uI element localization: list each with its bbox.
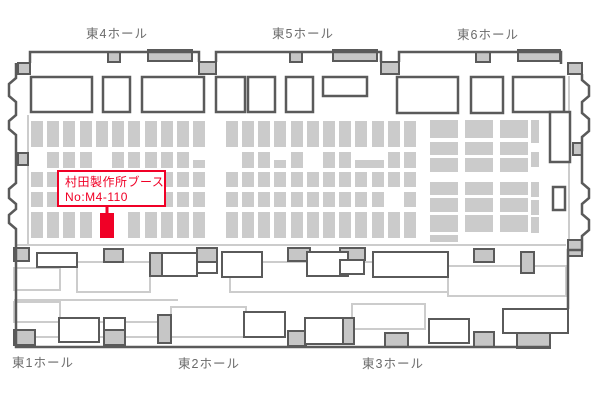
booth-block bbox=[323, 212, 335, 238]
booth-block bbox=[63, 121, 75, 147]
right-room bbox=[553, 187, 565, 210]
lower-gray-block bbox=[288, 331, 306, 346]
booth-block bbox=[242, 212, 254, 238]
lower-white-room bbox=[429, 319, 469, 343]
wall-entrance-bar bbox=[108, 52, 120, 62]
lower-gray-block bbox=[104, 249, 123, 262]
booth-block bbox=[323, 192, 335, 207]
booth-block bbox=[193, 172, 205, 187]
booth-block bbox=[274, 192, 286, 207]
booth-block bbox=[161, 152, 173, 168]
booth-block bbox=[372, 212, 384, 238]
door-block bbox=[568, 63, 582, 74]
booth-block bbox=[355, 192, 367, 207]
booth-block bbox=[128, 121, 140, 147]
lower-white-room bbox=[340, 260, 364, 274]
booth-block bbox=[339, 212, 351, 238]
top-room bbox=[397, 77, 458, 113]
lower-white-room bbox=[197, 262, 217, 273]
booth-block bbox=[193, 160, 205, 168]
booth-block-wide bbox=[500, 215, 528, 232]
booth-block-wide bbox=[465, 215, 493, 232]
top-room bbox=[31, 77, 92, 112]
booth-block bbox=[388, 212, 400, 238]
lower-gray-block bbox=[521, 252, 534, 273]
lower-white-room bbox=[244, 312, 285, 337]
booth-block bbox=[31, 121, 43, 147]
top-room bbox=[216, 77, 245, 112]
hall-label-east5: 東5ホール bbox=[272, 27, 334, 41]
booth-block bbox=[31, 192, 43, 207]
booth-block bbox=[404, 121, 416, 147]
booth-block bbox=[145, 212, 157, 238]
booth-block bbox=[323, 152, 335, 168]
lower-booth-outline bbox=[171, 307, 246, 337]
booth-block bbox=[404, 192, 416, 207]
booth-block bbox=[177, 172, 189, 187]
booth-block-wide bbox=[465, 198, 493, 212]
booth-block bbox=[339, 172, 351, 187]
booth-block bbox=[307, 172, 319, 187]
booth-block bbox=[96, 121, 108, 147]
booth-block-strip bbox=[531, 152, 539, 167]
booth-block bbox=[274, 212, 286, 238]
hall-label-east1: 東1ホール bbox=[12, 356, 74, 370]
door-block bbox=[18, 63, 30, 74]
booth-block bbox=[404, 152, 416, 168]
booth-block bbox=[31, 172, 43, 187]
booth-block-wide bbox=[430, 235, 458, 242]
lower-gray-block bbox=[385, 333, 408, 347]
wall-path bbox=[568, 74, 589, 309]
hall-label-east3: 東3ホール bbox=[362, 357, 424, 371]
booth-block bbox=[274, 121, 286, 147]
booth-block bbox=[242, 172, 254, 187]
booth-block bbox=[80, 212, 92, 238]
booth-block bbox=[63, 152, 75, 168]
lower-booth-outline bbox=[77, 262, 150, 292]
booth-block bbox=[128, 152, 140, 168]
booth-block bbox=[339, 152, 351, 168]
door-block bbox=[381, 62, 399, 74]
murata-booth-label-line2: No:M4-110 bbox=[65, 190, 160, 205]
booth-block bbox=[258, 192, 270, 207]
top-room bbox=[142, 77, 204, 112]
booth-block bbox=[404, 212, 416, 238]
booth-block bbox=[404, 172, 416, 187]
murata-booth-label-line1: 村田製作所ブース bbox=[65, 175, 160, 190]
wall-entrance-bar bbox=[476, 52, 490, 62]
booth-block bbox=[193, 192, 205, 207]
booth-block bbox=[258, 152, 270, 168]
booth-block bbox=[355, 212, 367, 238]
booth-block bbox=[47, 121, 59, 147]
lower-gray-block bbox=[150, 253, 162, 276]
booth-block-wide bbox=[430, 120, 458, 138]
right-room bbox=[550, 112, 570, 162]
murata-booth-callout: 村田製作所ブース No:M4-110 bbox=[57, 170, 166, 207]
top-room bbox=[471, 77, 503, 113]
booth-block-strip bbox=[531, 200, 539, 215]
hall-label-east4: 東4ホール bbox=[86, 27, 148, 41]
booth-block bbox=[63, 212, 75, 238]
lower-white-room bbox=[222, 252, 262, 277]
booth-block bbox=[339, 121, 351, 147]
booth-block bbox=[307, 121, 319, 147]
booth-block bbox=[291, 172, 303, 187]
lower-gray-block bbox=[158, 315, 171, 343]
booth-block bbox=[291, 152, 303, 168]
booth-block bbox=[274, 172, 286, 187]
booth-block bbox=[226, 172, 238, 187]
booth-block bbox=[258, 172, 270, 187]
booth-block-wide bbox=[465, 158, 493, 172]
top-room bbox=[103, 77, 130, 112]
booth-block bbox=[242, 152, 254, 168]
lower-white-room bbox=[59, 318, 99, 342]
booth-block bbox=[177, 152, 189, 168]
door-block bbox=[568, 240, 582, 256]
booth-block bbox=[177, 212, 189, 238]
booth-block bbox=[388, 121, 400, 147]
booth-block-strip bbox=[531, 120, 539, 143]
hall-label-east2: 東2ホール bbox=[178, 357, 240, 371]
lower-white-room bbox=[104, 318, 125, 330]
booth-block bbox=[226, 212, 238, 238]
lower-gray-block bbox=[474, 332, 494, 347]
booth-block-wide bbox=[430, 215, 458, 232]
booth-block-strip bbox=[531, 182, 539, 197]
booth-block bbox=[47, 152, 59, 168]
lower-booth-outline bbox=[448, 266, 566, 296]
booth-block bbox=[177, 121, 189, 147]
booth-block bbox=[161, 121, 173, 147]
booth-block-strip bbox=[531, 217, 539, 233]
booth-block bbox=[47, 212, 59, 238]
booth-block bbox=[355, 172, 367, 187]
top-room bbox=[286, 77, 313, 112]
lower-white-room bbox=[162, 253, 197, 276]
booth-block bbox=[388, 172, 400, 187]
booth-block bbox=[388, 160, 398, 166]
booth-block bbox=[291, 212, 303, 238]
booth-block-wide bbox=[430, 158, 458, 172]
booth-block bbox=[291, 192, 303, 207]
booth-block-wide bbox=[430, 142, 458, 155]
booth-block bbox=[372, 192, 384, 207]
lower-white-room bbox=[305, 318, 343, 344]
booth-block bbox=[307, 192, 319, 207]
door-block bbox=[18, 153, 28, 165]
booth-block-wide bbox=[430, 198, 458, 212]
booth-block-wide bbox=[465, 142, 493, 155]
booth-block bbox=[80, 121, 92, 147]
booth-block bbox=[161, 212, 173, 238]
lower-white-room bbox=[37, 253, 77, 267]
booth-block bbox=[128, 212, 140, 238]
booth-block bbox=[177, 192, 189, 207]
lower-gray-block bbox=[104, 330, 125, 345]
booth-block bbox=[372, 172, 384, 187]
booth-block bbox=[258, 121, 270, 147]
top-room bbox=[323, 77, 367, 96]
booth-block-wide bbox=[500, 158, 528, 172]
floor-map: 東4ホール東5ホール東6ホール東1ホール東2ホール東3ホール 村田製作所ブース … bbox=[0, 0, 600, 400]
booth-block-wide bbox=[500, 182, 528, 195]
booth-block bbox=[307, 212, 319, 238]
booth-block bbox=[112, 121, 124, 147]
lower-gray-block bbox=[343, 318, 354, 344]
booth-block-wide bbox=[430, 182, 458, 195]
lower-booth-outline bbox=[14, 302, 60, 322]
booth-block bbox=[145, 152, 157, 168]
lower-gray-block bbox=[474, 249, 494, 262]
hall-label-east6: 東6ホール bbox=[457, 28, 519, 42]
door-block bbox=[199, 62, 216, 74]
booth-block bbox=[291, 121, 303, 147]
booth-block bbox=[242, 121, 254, 147]
booth-block bbox=[372, 121, 384, 147]
booth-block bbox=[112, 152, 124, 168]
lower-gray-block bbox=[197, 248, 217, 262]
lower-white-room bbox=[373, 252, 448, 277]
lower-booth-outline bbox=[352, 304, 425, 329]
lower-white-room bbox=[503, 309, 568, 333]
booth-block bbox=[323, 172, 335, 187]
booth-block-wide bbox=[465, 120, 493, 138]
booth-block bbox=[80, 152, 92, 168]
booth-block bbox=[226, 121, 238, 147]
booth-block bbox=[274, 160, 286, 168]
booth-block bbox=[145, 121, 157, 147]
top-room bbox=[513, 77, 564, 112]
wall-entrance-bar bbox=[290, 52, 302, 62]
booth-block bbox=[355, 160, 384, 168]
booth-block bbox=[339, 192, 351, 207]
booth-block-wide bbox=[465, 182, 493, 195]
lower-booth-outline bbox=[14, 268, 60, 290]
booth-block bbox=[355, 121, 367, 147]
booth-block bbox=[226, 192, 238, 207]
booth-block bbox=[193, 212, 205, 238]
booth-block-wide bbox=[500, 198, 528, 212]
booth-block bbox=[31, 212, 43, 238]
booth-block bbox=[193, 121, 205, 147]
booth-block-wide bbox=[500, 142, 528, 155]
murata-booth-marker bbox=[100, 213, 114, 238]
booth-block bbox=[258, 212, 270, 238]
door-block bbox=[573, 143, 582, 155]
top-room bbox=[248, 77, 275, 112]
booth-block-wide bbox=[500, 120, 528, 138]
booth-block bbox=[242, 192, 254, 207]
booth-block bbox=[323, 121, 335, 147]
